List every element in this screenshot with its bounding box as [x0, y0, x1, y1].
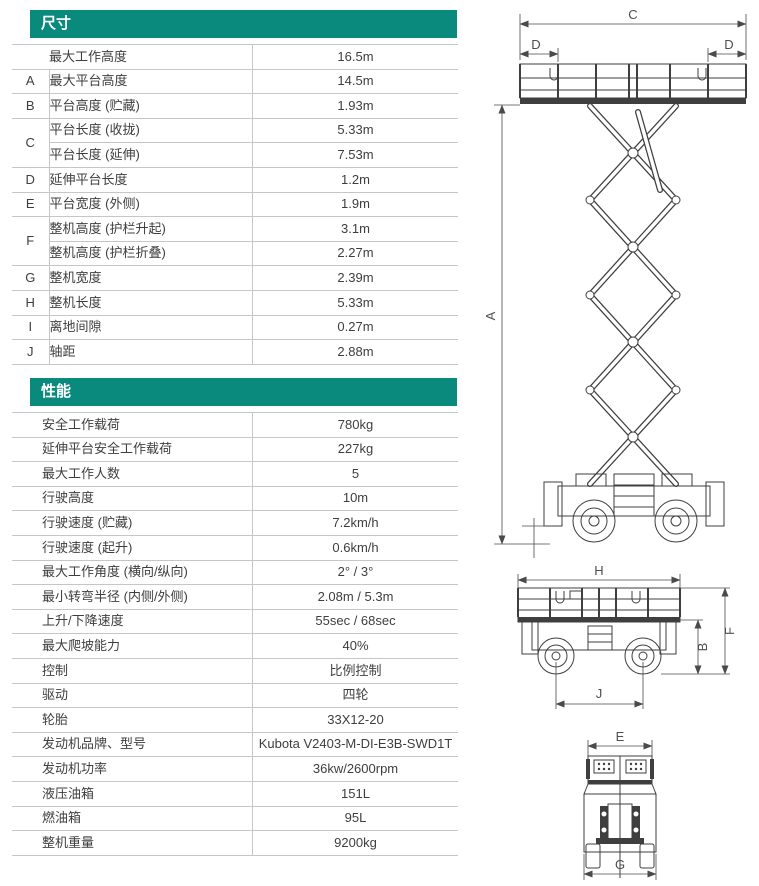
- table-row: J 轴距 2.88m: [12, 340, 458, 365]
- table-row: 驱动 四轮: [12, 683, 458, 708]
- row-letter: [12, 45, 49, 70]
- row-label: 驱动: [12, 683, 253, 708]
- row-letter: G: [12, 266, 49, 291]
- dim-label-j: J: [596, 686, 603, 701]
- table-row: 发动机功率 36kw/2600rpm: [12, 757, 458, 782]
- dim-label-d-left: D: [531, 37, 540, 52]
- table-row: A 最大平台高度 14.5m: [12, 69, 458, 94]
- row-value: 1.93m: [253, 94, 459, 119]
- row-label: 最大工作人数: [12, 462, 253, 487]
- table-row: 最大工作角度 (横向/纵向) 2° / 3°: [12, 560, 458, 585]
- row-label: 行驶速度 (贮藏): [12, 511, 253, 536]
- row-label: 控制: [12, 658, 253, 683]
- row-value: 10m: [253, 486, 459, 511]
- dim-label-g: G: [615, 857, 625, 872]
- row-value: 2.08m / 5.3m: [253, 585, 459, 610]
- performance-title: 性能: [30, 378, 457, 406]
- row-value: Kubota V2403-M-DI-E3B-SWD1T: [253, 732, 459, 757]
- row-value: 7.2km/h: [253, 511, 459, 536]
- row-label: 行驶高度: [12, 486, 253, 511]
- performance-table: 安全工作载荷 780kg 延伸平台安全工作载荷 227kg 最大工作人数 5 行…: [12, 412, 458, 856]
- row-value: 151L: [253, 781, 459, 806]
- table-row: H 整机长度 5.33m: [12, 290, 458, 315]
- row-label: 延伸平台安全工作载荷: [12, 437, 253, 462]
- table-row: 最大工作高度 16.5m: [12, 45, 458, 70]
- row-label: 平台高度 (贮藏): [49, 94, 253, 119]
- table-row: 发动机品牌、型号 Kubota V2403-M-DI-E3B-SWD1T: [12, 732, 458, 757]
- row-label: 发动机品牌、型号: [12, 732, 253, 757]
- table-row: 最大爬坡能力 40%: [12, 634, 458, 659]
- table-row: C 平台长度 (收拢) 5.33m: [12, 118, 458, 143]
- performance-panel: 性能 安全工作载荷 780kg 延伸平台安全工作载荷 227kg 最大工作人数 …: [12, 378, 458, 856]
- row-value: 5.33m: [253, 290, 459, 315]
- row-value: 33X12-20: [253, 708, 459, 733]
- row-value: 227kg: [253, 437, 459, 462]
- row-value: 2° / 3°: [253, 560, 459, 585]
- drawing-extended-view: C D D A: [486, 4, 756, 560]
- table-row: 最大工作人数 5: [12, 462, 458, 487]
- row-label: 轴距: [49, 340, 253, 365]
- row-value: 3.1m: [253, 217, 459, 242]
- row-label: 最大工作角度 (横向/纵向): [12, 560, 253, 585]
- wheel: [655, 500, 697, 542]
- row-label: 轮胎: [12, 708, 253, 733]
- dim-label-a: A: [486, 311, 498, 320]
- row-value: 2.27m: [253, 241, 459, 266]
- scissor-arms: [586, 106, 680, 484]
- table-row: 延伸平台安全工作载荷 227kg: [12, 437, 458, 462]
- row-label: 整机长度: [49, 290, 253, 315]
- table-row: 液压油箱 151L: [12, 781, 458, 806]
- row-value: 2.88m: [253, 340, 459, 365]
- row-value: 7.53m: [253, 143, 459, 168]
- row-letter: I: [12, 315, 49, 340]
- row-value: 14.5m: [253, 69, 459, 94]
- table-row: 最小转弯半径 (内侧/外侧) 2.08m / 5.3m: [12, 585, 458, 610]
- table-row: G 整机宽度 2.39m: [12, 266, 458, 291]
- row-label: 上升/下降速度: [12, 609, 253, 634]
- drawing-rear-view: E: [550, 726, 725, 884]
- row-label: 平台宽度 (外侧): [49, 192, 253, 217]
- dim-label-h: H: [594, 563, 603, 578]
- row-label: 最大工作高度: [49, 45, 253, 70]
- row-value: 1.9m: [253, 192, 459, 217]
- table-row: F 整机高度 (护栏升起) 3.1m: [12, 217, 458, 242]
- table-row: B 平台高度 (贮藏) 1.93m: [12, 94, 458, 119]
- table-row: 行驶高度 10m: [12, 486, 458, 511]
- table-row: 安全工作载荷 780kg: [12, 413, 458, 438]
- spec-sheet-page: 尺寸 最大工作高度 16.5m A 最大平台高度 14.5m B 平台高度 (贮…: [0, 0, 759, 886]
- row-label: 发动机功率: [12, 757, 253, 782]
- table-row: 轮胎 33X12-20: [12, 708, 458, 733]
- dimensions-title: 尺寸: [30, 10, 457, 38]
- drawing-stowed-view: H: [492, 558, 758, 730]
- row-letter: A: [12, 69, 49, 94]
- row-letter: C: [12, 118, 49, 167]
- row-label: 最大平台高度: [49, 69, 253, 94]
- row-label: 液压油箱: [12, 781, 253, 806]
- table-row: E 平台宽度 (外侧) 1.9m: [12, 192, 458, 217]
- row-value: 5.33m: [253, 118, 459, 143]
- row-label: 延伸平台长度: [49, 167, 253, 192]
- table-row: 整机重量 9200kg: [12, 831, 458, 856]
- table-row: D 延伸平台长度 1.2m: [12, 167, 458, 192]
- dim-label-b: B: [695, 643, 710, 652]
- row-value: 5: [253, 462, 459, 487]
- table-row: I 离地间隙 0.27m: [12, 315, 458, 340]
- table-row: 上升/下降速度 55sec / 68sec: [12, 609, 458, 634]
- row-letter: B: [12, 94, 49, 119]
- row-label: 整机宽度: [49, 266, 253, 291]
- row-label: 离地间隙: [49, 315, 253, 340]
- row-value: 9200kg: [253, 831, 459, 856]
- dim-label-c: C: [628, 7, 637, 22]
- row-value: 780kg: [253, 413, 459, 438]
- row-value: 0.6km/h: [253, 535, 459, 560]
- table-row: 整机高度 (护栏折叠) 2.27m: [12, 241, 458, 266]
- table-row: 控制 比例控制: [12, 658, 458, 683]
- row-letter: D: [12, 167, 49, 192]
- dim-label-e: E: [616, 729, 625, 744]
- row-label: 整机高度 (护栏升起): [49, 217, 253, 242]
- row-value: 2.39m: [253, 266, 459, 291]
- row-value: 55sec / 68sec: [253, 609, 459, 634]
- dim-label-f: F: [722, 627, 737, 635]
- row-letter: H: [12, 290, 49, 315]
- row-letter: E: [12, 192, 49, 217]
- table-row: 燃油箱 95L: [12, 806, 458, 831]
- row-label: 燃油箱: [12, 806, 253, 831]
- row-value: 36kw/2600rpm: [253, 757, 459, 782]
- row-label: 最小转弯半径 (内侧/外侧): [12, 585, 253, 610]
- row-value: 四轮: [253, 683, 459, 708]
- dimensions-panel: 尺寸 最大工作高度 16.5m A 最大平台高度 14.5m B 平台高度 (贮…: [12, 10, 458, 365]
- row-label: 行驶速度 (起升): [12, 535, 253, 560]
- table-row: 行驶速度 (起升) 0.6km/h: [12, 535, 458, 560]
- row-label: 平台长度 (收拢): [49, 118, 253, 143]
- dim-label-d-right: D: [724, 37, 733, 52]
- row-letter: F: [12, 217, 49, 266]
- table-row: 平台长度 (延伸) 7.53m: [12, 143, 458, 168]
- row-label: 整机重量: [12, 831, 253, 856]
- row-value: 40%: [253, 634, 459, 659]
- row-value: 1.2m: [253, 167, 459, 192]
- row-label: 整机高度 (护栏折叠): [49, 241, 253, 266]
- row-value: 16.5m: [253, 45, 459, 70]
- row-label: 最大爬坡能力: [12, 634, 253, 659]
- row-letter: J: [12, 340, 49, 365]
- dimensions-table: 最大工作高度 16.5m A 最大平台高度 14.5m B 平台高度 (贮藏) …: [12, 44, 458, 365]
- row-value: 比例控制: [253, 658, 459, 683]
- row-value: 0.27m: [253, 315, 459, 340]
- row-label: 平台长度 (延伸): [49, 143, 253, 168]
- table-row: 行驶速度 (贮藏) 7.2km/h: [12, 511, 458, 536]
- row-label: 安全工作载荷: [12, 413, 253, 438]
- wheel: [573, 500, 615, 542]
- row-value: 95L: [253, 806, 459, 831]
